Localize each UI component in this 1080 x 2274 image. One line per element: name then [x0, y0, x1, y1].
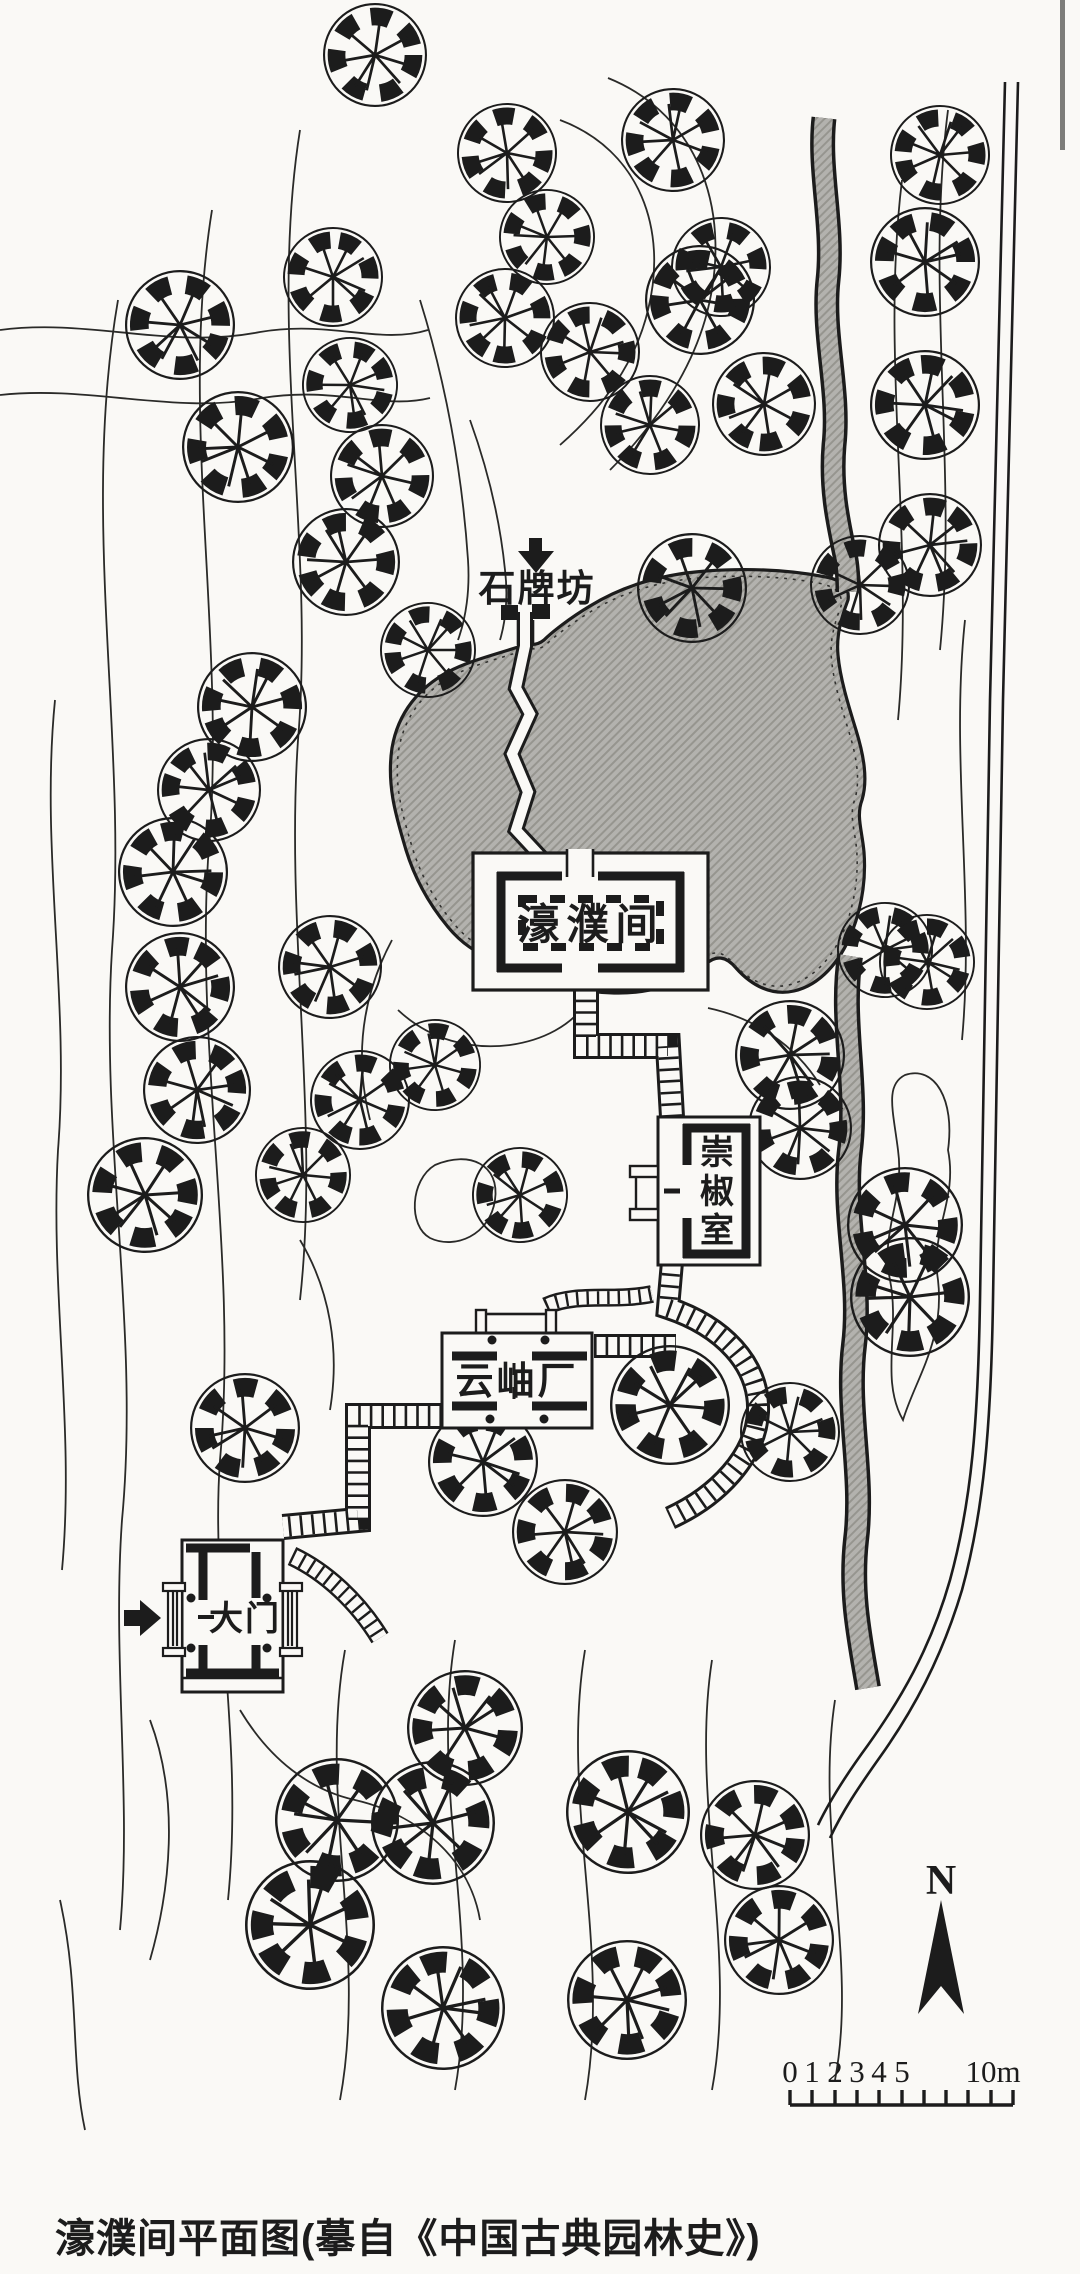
tree-icon: [232, 1847, 388, 2003]
tree-icon: [300, 1040, 420, 1160]
hall-channel-gap: [567, 849, 593, 877]
scale-tick-3: 3: [849, 2054, 865, 2089]
scan-edge-artifact: [1060, 0, 1065, 150]
scale-bar-line: [790, 2090, 1013, 2105]
tree-icon: [849, 186, 1001, 338]
tree-icon: [859, 474, 1001, 616]
label-stone-archway: 石牌坊: [478, 568, 596, 609]
north-arrow-icon: [918, 1900, 964, 2014]
gate-entry-arrow-icon: [124, 1600, 161, 1636]
garden-plan-page: 石牌坊 濠濮间 崇 椒 室 云岫厂 大门 N 0 1 2 3 4 5 10m 濠…: [0, 0, 1080, 2274]
tree-icon: [699, 339, 830, 470]
tree-icon: [108, 915, 251, 1058]
gate-porch-left: [163, 1583, 185, 1656]
tree-icon: [169, 1352, 321, 1504]
label-main-gate: 大门: [209, 1600, 281, 1638]
tree-icon: [658, 204, 784, 330]
tree-icon: [887, 102, 993, 208]
north-label: N: [926, 1858, 956, 1904]
tree-icon: [493, 183, 602, 292]
label-chongjiao-char-1: 崇: [700, 1134, 734, 1172]
yunxiu-porch: [480, 1314, 552, 1333]
gate-porch-right: [280, 1583, 302, 1656]
scale-tick-1: 1: [804, 2054, 820, 2089]
tree-icon: [276, 220, 390, 334]
label-haopu-hall: 濠濮间: [517, 901, 664, 948]
scale-end-label: 10m: [965, 2054, 1020, 2089]
stream-upper: [823, 118, 848, 592]
tree-icon: [438, 84, 576, 222]
tree-icon: [284, 319, 417, 452]
plan-caption: 濠濮间平面图(摹自《中国古典园林史》): [55, 2216, 761, 2261]
tree-icon: [867, 347, 984, 464]
scale-tick-2: 2: [827, 2054, 843, 2089]
scale-bar: 0 1 2 3 4 5 10m: [782, 2054, 1020, 2105]
label-chongjiao-char-2: 椒: [700, 1173, 734, 1211]
tree-icon: [703, 1864, 855, 2016]
garden-plan-drawing: 石牌坊 濠濮间 崇 椒 室 云岫厂 大门 N 0 1 2 3 4 5 10m 濠…: [0, 0, 1080, 2274]
north-compass: N: [918, 1858, 964, 2014]
chongjiao-porch-top: [630, 1166, 658, 1177]
scale-tick-0: 0: [782, 2054, 798, 2089]
tree-icon: [362, 1927, 523, 2088]
tree-icon: [324, 4, 426, 106]
tree-icon: [554, 1738, 703, 1887]
tree-icon: [608, 75, 739, 206]
scale-tick-4: 4: [871, 2054, 887, 2089]
chongjiao-porch-bottom: [630, 1209, 658, 1220]
tree-icon: [880, 915, 974, 1009]
tree-icon: [114, 259, 246, 391]
tree-icon: [457, 1132, 582, 1257]
scale-tick-5: 5: [894, 2054, 910, 2089]
label-chongjiao-char-3: 室: [700, 1211, 734, 1250]
building-chongjiao-room: [630, 1117, 760, 1265]
label-yunxiu-hall: 云岫厂: [455, 1361, 578, 1403]
tree-icon: [545, 1918, 709, 2082]
tree-icon: [262, 899, 397, 1034]
